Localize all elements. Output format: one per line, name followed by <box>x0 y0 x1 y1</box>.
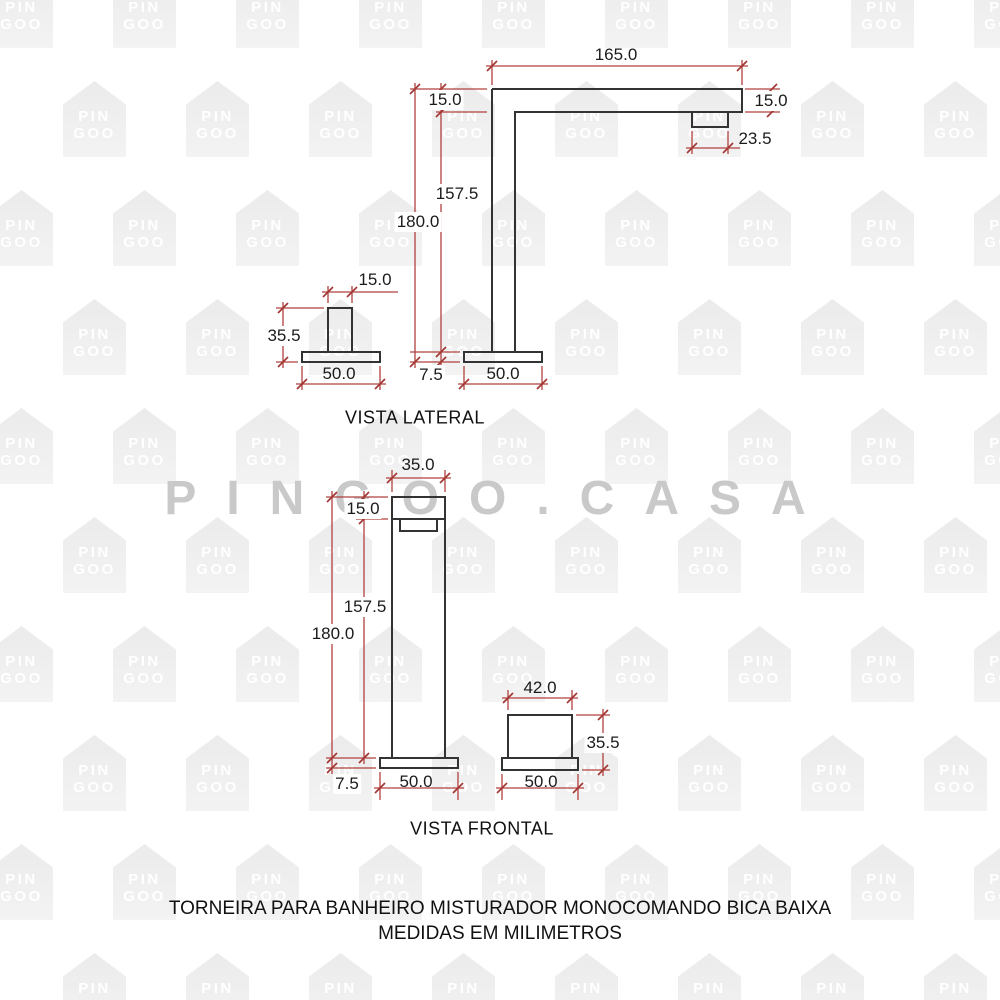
dim-lateral-spout-length: 23.5 <box>738 129 771 149</box>
house-watermark-text: GOO <box>728 234 791 251</box>
house-watermark-text: GOO <box>605 234 668 251</box>
house-watermark-text: GOO <box>63 343 126 360</box>
house-watermark-text: GOO <box>974 16 1000 33</box>
house-watermark-text: PIN <box>924 980 987 997</box>
pingoo-house-watermark-icon: PINGOO <box>974 0 1000 48</box>
pingoo-house-watermark-icon: PINGOO <box>974 626 1000 702</box>
dimension-tick-mark <box>278 357 288 367</box>
house-watermark-text: PIN <box>482 435 545 452</box>
house-watermark-text: PIN <box>924 326 987 343</box>
dim-lateral-handle-width: 15.0 <box>358 270 391 290</box>
house-watermark-text: PIN <box>113 653 176 670</box>
dimension-tick-mark <box>497 783 507 793</box>
house-watermark-text: PIN <box>851 653 914 670</box>
pingoo-house-watermark-icon: PINGOO <box>555 81 618 157</box>
house-watermark-text: PIN <box>359 435 422 452</box>
house-watermark-text: PIN <box>186 980 249 997</box>
house-watermark-text: PIN <box>482 871 545 888</box>
house-watermark-text: GOO <box>801 561 864 578</box>
house-watermark-text: PIN <box>555 980 618 997</box>
pingoo-house-watermark-icon: PINGOO <box>186 517 249 593</box>
dim-lateral-base-width: 50.0 <box>486 364 519 384</box>
footer-caption-line2: MEDIDAS EM MILIMETROS <box>378 923 622 945</box>
pingoo-house-watermark-icon: PINGOO <box>605 626 668 702</box>
brand-watermark-text: PINGOO.CASA <box>164 475 835 523</box>
pingoo-house-watermark-icon: PINGOO <box>186 299 249 375</box>
pingoo-house-watermark-icon: PINGOO <box>0 408 53 484</box>
house-watermark-text: PIN <box>555 762 618 779</box>
house-watermark-text: GOO <box>555 779 618 796</box>
house-watermark-text: PIN <box>432 326 495 343</box>
house-watermark-text: GOO <box>555 561 618 578</box>
house-watermark-text: GOO <box>728 16 791 33</box>
pingoo-house-watermark-icon: PINGOO <box>359 626 422 702</box>
pingoo-house-watermark-icon: PINGOO <box>678 735 741 811</box>
pingoo-house-watermark-icon: PINGOO <box>728 626 791 702</box>
house-watermark-text: PIN <box>801 980 864 997</box>
house-watermark-text: GOO <box>924 779 987 796</box>
house-watermark-text: GOO <box>801 779 864 796</box>
house-watermark-text: PIN <box>728 653 791 670</box>
house-watermark-text: PIN <box>801 544 864 561</box>
house-watermark-text: GOO <box>678 343 741 360</box>
dimension-tick-mark <box>297 379 307 389</box>
dim-frontal-body-width: 35.0 <box>401 455 434 475</box>
dim-lateral-base-height: 7.5 <box>417 365 445 385</box>
dim-frontal-handle-height: 35.5 <box>584 733 621 753</box>
house-watermark-text: GOO <box>113 888 176 905</box>
house-watermark-text: PIN <box>0 0 53 16</box>
frontal-view-title: VISTA FRONTAL <box>410 819 554 840</box>
pingoo-house-watermark-icon: PINGOO <box>0 844 53 920</box>
pingoo-house-watermark-icon: PINGOO <box>974 408 1000 484</box>
house-watermark-text: PIN <box>482 0 545 16</box>
house-watermark-text: PIN <box>605 217 668 234</box>
house-watermark-text: GOO <box>63 779 126 796</box>
dimension-tick-mark <box>598 710 608 720</box>
house-watermark-text: PIN <box>0 871 53 888</box>
dim-frontal-base-width: 50.0 <box>399 772 432 792</box>
house-watermark-text: GOO <box>482 234 545 251</box>
pingoo-house-watermark-icon: PINGOO <box>309 81 372 157</box>
house-watermark-text: PIN <box>359 0 422 16</box>
house-watermark-text: GOO <box>309 125 372 142</box>
house-watermark-text: PIN <box>974 435 1000 452</box>
pingoo-house-watermark-icon: PINGOO <box>63 299 126 375</box>
house-watermark-text: GOO <box>359 16 422 33</box>
house-watermark-text: PIN <box>851 217 914 234</box>
house-watermark-text: GOO <box>482 452 545 469</box>
house-watermark-text: PIN <box>309 980 372 997</box>
pingoo-house-watermark-icon: PINGOO <box>0 626 53 702</box>
house-watermark-text: PIN <box>309 326 372 343</box>
house-watermark-text: GOO <box>555 343 618 360</box>
pingoo-house-watermark-icon: PINGOO <box>851 0 914 48</box>
pingoo-house-watermark-icon: PINGOO <box>678 299 741 375</box>
house-watermark-text: PIN <box>63 544 126 561</box>
dim-lateral-height-inner: 157.5 <box>434 184 481 204</box>
house-watermark-text: GOO <box>0 452 53 469</box>
pingoo-house-watermark-icon: PINGOO <box>186 81 249 157</box>
dim-frontal-base-height: 7.5 <box>333 774 361 794</box>
house-watermark-text: GOO <box>186 343 249 360</box>
house-watermark-text: GOO <box>974 670 1000 687</box>
pingoo-house-watermark-icon: PINGOO <box>924 81 987 157</box>
pingoo-house-watermark-icon: PINGOO <box>113 844 176 920</box>
house-watermark-text: PIN <box>359 653 422 670</box>
house-watermark-text: GOO <box>63 125 126 142</box>
pingoo-house-watermark-icon: PINGOO <box>236 190 299 266</box>
house-watermark-text: GOO <box>851 670 914 687</box>
house-watermark-text: PIN <box>801 108 864 125</box>
pingoo-house-watermark-icon: PINGOO <box>0 0 53 48</box>
house-watermark-text: PIN <box>678 980 741 997</box>
pingoo-house-watermark-icon: PINGOO <box>63 953 126 1000</box>
dim-frontal-top-section: 15.0 <box>344 499 381 519</box>
house-watermark-text: PIN <box>851 435 914 452</box>
house-watermark-text: GOO <box>851 234 914 251</box>
house-watermark-text: GOO <box>236 234 299 251</box>
pingoo-house-watermark-icon: PINGOO <box>851 626 914 702</box>
house-watermark-text: PIN <box>0 435 53 452</box>
house-watermark-text: GOO <box>605 452 668 469</box>
pingoo-house-watermark-icon: PINGOO <box>309 517 372 593</box>
pingoo-house-watermark-icon: PINGOO <box>63 517 126 593</box>
pingoo-house-watermark-icon: PINGOO <box>309 735 372 811</box>
house-watermark-text: PIN <box>801 762 864 779</box>
house-watermark-text: PIN <box>63 326 126 343</box>
house-watermark-text: GOO <box>186 561 249 578</box>
house-watermark-text: PIN <box>432 544 495 561</box>
house-watermark-text: GOO <box>186 125 249 142</box>
house-watermark-text: GOO <box>432 343 495 360</box>
pingoo-house-watermark-icon: PINGOO <box>678 517 741 593</box>
dim-frontal-handle-width: 42.0 <box>523 678 556 698</box>
house-watermark-text: PIN <box>482 217 545 234</box>
house-watermark-text: GOO <box>801 343 864 360</box>
house-watermark-text: GOO <box>309 343 372 360</box>
dim-lateral-height-total: 180.0 <box>395 212 442 232</box>
house-watermark-text: PIN <box>0 653 53 670</box>
house-watermark-text: PIN <box>482 653 545 670</box>
pingoo-house-watermark-icon: PINGOO <box>432 517 495 593</box>
house-watermark-text: PIN <box>63 108 126 125</box>
dim-lateral-top-length: 165.0 <box>595 45 638 65</box>
house-watermark-text: GOO <box>678 125 741 142</box>
house-watermark-text: GOO <box>974 888 1000 905</box>
house-watermark-text: PIN <box>728 871 791 888</box>
house-watermark-text: PIN <box>113 871 176 888</box>
house-watermark-text: GOO <box>63 561 126 578</box>
house-watermark-text: GOO <box>236 452 299 469</box>
dimension-tick-mark <box>375 783 385 793</box>
pingoo-house-watermark-icon: PINGOO <box>974 190 1000 266</box>
lateral-view-title: VISTA LATERAL <box>345 408 485 429</box>
pingoo-house-watermark-icon: PINGOO <box>851 190 914 266</box>
house-watermark-text: PIN <box>236 435 299 452</box>
pingoo-house-watermark-icon: PINGOO <box>851 844 914 920</box>
pingoo-house-watermark-icon: PINGOO <box>924 953 987 1000</box>
pingoo-house-watermark-icon: PINGOO <box>728 190 791 266</box>
house-watermark-text: GOO <box>113 16 176 33</box>
house-watermark-text: GOO <box>309 561 372 578</box>
house-watermark-text: GOO <box>236 670 299 687</box>
house-watermark-text: PIN <box>851 871 914 888</box>
pingoo-house-watermark-icon: PINGOO <box>432 735 495 811</box>
house-watermark-text: GOO <box>359 234 422 251</box>
house-watermark-text: PIN <box>728 435 791 452</box>
dimension-tick-mark <box>347 287 357 297</box>
house-watermark-text: PIN <box>974 653 1000 670</box>
dim-lateral-arm-left: 15.0 <box>426 90 463 110</box>
pingoo-house-watermark-icon: PINGOO <box>924 299 987 375</box>
dim-frontal-height-total: 180.0 <box>310 624 357 644</box>
frontal-body <box>392 497 445 758</box>
house-watermark-text: GOO <box>555 125 618 142</box>
house-watermark-text: GOO <box>974 234 1000 251</box>
house-watermark-text: PIN <box>309 108 372 125</box>
house-watermark-text: PIN <box>605 0 668 16</box>
house-watermark-text: PIN <box>728 217 791 234</box>
house-watermark-text: PIN <box>63 980 126 997</box>
pingoo-house-watermark-icon: PINGOO <box>801 81 864 157</box>
pingoo-house-watermark-icon: PINGOO <box>63 735 126 811</box>
pingoo-house-watermark-icon: PINGOO <box>924 517 987 593</box>
house-watermark-text: GOO <box>851 452 914 469</box>
dimension-tick-mark <box>278 303 288 313</box>
house-watermark-text: PIN <box>678 544 741 561</box>
dim-lateral-arm-right: 15.0 <box>752 91 789 111</box>
house-watermark-text: PIN <box>236 217 299 234</box>
pingoo-house-watermark-icon: PINGOO <box>359 0 422 48</box>
house-watermark-text: PIN <box>924 544 987 561</box>
house-watermark-text: GOO <box>0 888 53 905</box>
house-watermark-text: GOO <box>0 234 53 251</box>
pingoo-house-watermark-icon: PINGOO <box>801 299 864 375</box>
house-watermark-text: PIN <box>432 108 495 125</box>
pingoo-house-watermark-icon: PINGOO <box>482 0 545 48</box>
house-watermark-text: GOO <box>801 125 864 142</box>
pingoo-house-watermark-icon: PINGOO <box>113 190 176 266</box>
house-watermark-text: GOO <box>924 125 987 142</box>
pingoo-house-watermark-icon: PINGOO <box>236 626 299 702</box>
house-watermark-text: GOO <box>432 125 495 142</box>
pingoo-house-watermark-icon: PINGOO <box>186 735 249 811</box>
dim-frontal-height-inner: 157.5 <box>342 597 389 617</box>
pingoo-house-watermark-icon: PINGOO <box>555 953 618 1000</box>
house-watermark-text: GOO <box>851 888 914 905</box>
house-watermark-text: PIN <box>678 762 741 779</box>
pingoo-house-watermark-icon: PINGOO <box>801 517 864 593</box>
house-watermark-text: PIN <box>186 326 249 343</box>
pingoo-house-watermark-icon: PINGOO <box>801 735 864 811</box>
house-watermark-text: PIN <box>801 326 864 343</box>
house-watermark-text: PIN <box>605 435 668 452</box>
house-watermark-text: GOO <box>678 561 741 578</box>
house-watermark-text: PIN <box>236 0 299 16</box>
pingoo-house-watermark-icon: PINGOO <box>974 844 1000 920</box>
pingoo-house-watermark-icon: PINGOO <box>801 953 864 1000</box>
pingoo-house-watermark-icon: PINGOO <box>432 953 495 1000</box>
house-watermark-text: PIN <box>924 762 987 779</box>
house-watermark-text: PIN <box>359 871 422 888</box>
house-watermark-text: PIN <box>678 108 741 125</box>
pingoo-house-watermark-icon: PINGOO <box>555 517 618 593</box>
house-watermark-text: PIN <box>0 217 53 234</box>
house-watermark-text: PIN <box>851 0 914 16</box>
dimension-tick-mark <box>537 379 547 389</box>
house-watermark-text: PIN <box>236 653 299 670</box>
house-watermark-text: GOO <box>482 16 545 33</box>
house-watermark-text: GOO <box>0 16 53 33</box>
pingoo-house-watermark-icon: PINGOO <box>924 735 987 811</box>
house-watermark-text: GOO <box>113 234 176 251</box>
house-watermark-text: PIN <box>236 871 299 888</box>
dim-frontal-handle-base: 50.0 <box>524 772 557 792</box>
dim-lateral-handle-base: 50.0 <box>322 364 355 384</box>
house-watermark-text: GOO <box>974 452 1000 469</box>
house-watermark-text: PIN <box>186 544 249 561</box>
house-watermark-text: PIN <box>186 108 249 125</box>
house-watermark-text: GOO <box>113 670 176 687</box>
pingoo-house-watermark-icon: PINGOO <box>482 190 545 266</box>
house-watermark-text: PIN <box>974 871 1000 888</box>
dimension-tick-mark <box>375 379 385 389</box>
house-watermark-text: GOO <box>851 16 914 33</box>
house-watermark-text: PIN <box>113 435 176 452</box>
house-watermark-text: GOO <box>432 779 495 796</box>
dimension-tick-mark <box>737 61 747 71</box>
dim-lateral-handle-height: 35.5 <box>265 326 302 346</box>
pingoo-house-watermark-icon: PINGOO <box>678 953 741 1000</box>
house-watermark-text: GOO <box>728 452 791 469</box>
house-watermark-text: GOO <box>432 561 495 578</box>
house-watermark-text: GOO <box>186 779 249 796</box>
house-watermark-text: PIN <box>924 108 987 125</box>
pingoo-house-watermark-icon: PINGOO <box>0 190 53 266</box>
frontal-handle <box>508 715 572 758</box>
house-watermark-text: GOO <box>924 561 987 578</box>
house-watermark-text: PIN <box>728 0 791 16</box>
house-watermark-text: PIN <box>113 217 176 234</box>
house-watermark-text: GOO <box>728 670 791 687</box>
pingoo-house-watermark-icon: PINGOO <box>186 953 249 1000</box>
pingoo-house-watermark-icon: PINGOO <box>728 0 791 48</box>
house-watermark-text: GOO <box>605 16 668 33</box>
house-watermark-text: PIN <box>113 0 176 16</box>
house-watermark-text: PIN <box>974 217 1000 234</box>
pingoo-house-watermark-icon: PINGOO <box>309 953 372 1000</box>
pingoo-house-watermark-icon: PINGOO <box>63 81 126 157</box>
pingoo-house-watermark-icon: PINGOO <box>851 408 914 484</box>
pingoo-house-watermark-icon: PINGOO <box>678 81 741 157</box>
house-watermark-text: PIN <box>555 108 618 125</box>
dimension-tick-mark <box>323 287 333 297</box>
technical-drawing-page: PINGOOPINGOOPINGOOPINGOOPINGOOPINGOOPING… <box>0 0 1000 1000</box>
house-watermark-text: GOO <box>678 779 741 796</box>
pingoo-house-watermark-icon: PINGOO <box>555 299 618 375</box>
house-watermark-text: PIN <box>555 326 618 343</box>
house-watermark-text: GOO <box>0 670 53 687</box>
pingoo-house-watermark-icon: PINGOO <box>236 0 299 48</box>
house-watermark-text: GOO <box>113 452 176 469</box>
dimension-tick-mark <box>459 379 469 389</box>
house-watermark-text: PIN <box>186 762 249 779</box>
house-watermark-text: PIN <box>605 871 668 888</box>
pingoo-house-watermark-icon: PINGOO <box>113 626 176 702</box>
house-watermark-text: PIN <box>605 653 668 670</box>
pingoo-house-watermark-icon: PINGOO <box>605 0 668 48</box>
house-watermark-text: PIN <box>555 544 618 561</box>
pingoo-house-watermark-icon: PINGOO <box>605 190 668 266</box>
house-watermark-text: GOO <box>236 16 299 33</box>
house-watermark-text: PIN <box>432 980 495 997</box>
house-watermark-text: GOO <box>359 670 422 687</box>
house-watermark-text: GOO <box>924 343 987 360</box>
dimension-tick-mark <box>487 61 497 71</box>
house-watermark-text: PIN <box>432 762 495 779</box>
house-watermark-text: PIN <box>974 0 1000 16</box>
house-watermark-text: PIN <box>309 544 372 561</box>
house-watermark-text: GOO <box>605 670 668 687</box>
dimension-tick-mark <box>410 84 420 94</box>
dimension-tick-mark <box>567 693 577 703</box>
footer-caption-line1: TORNEIRA PARA BANHEIRO MISTURADOR MONOCO… <box>169 898 831 920</box>
pingoo-house-watermark-icon: PINGOO <box>113 0 176 48</box>
house-watermark-text: PIN <box>678 326 741 343</box>
house-watermark-text: PIN <box>63 762 126 779</box>
